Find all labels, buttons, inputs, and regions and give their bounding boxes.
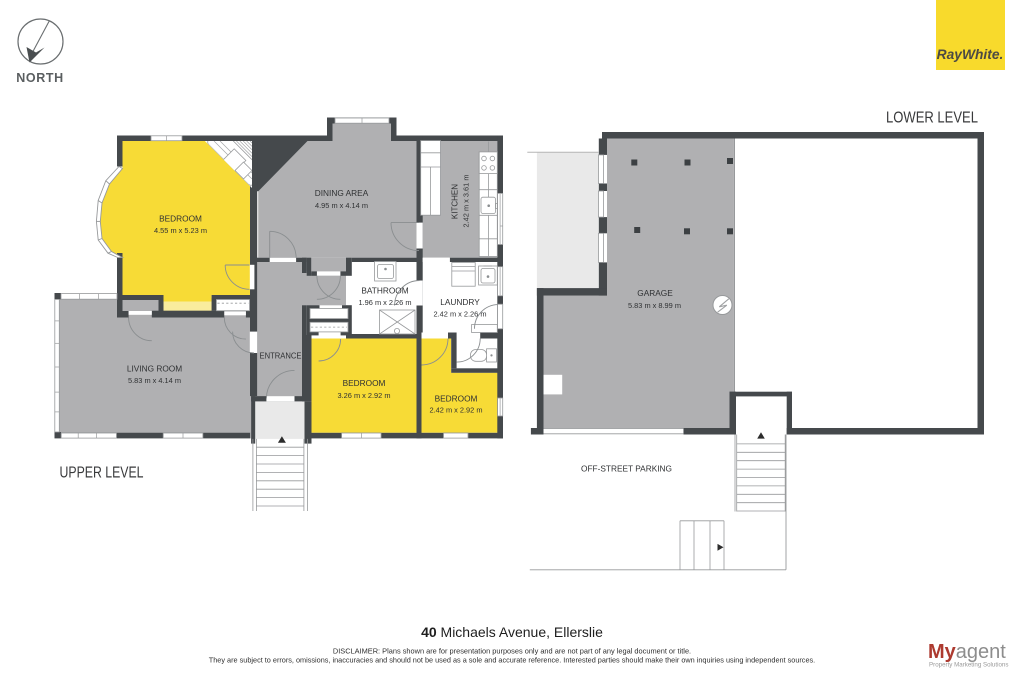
svg-text:40 Michaels Avenue, Ellerslie: 40 Michaels Avenue, Ellerslie	[421, 624, 603, 640]
svg-text:BEDROOM: BEDROOM	[159, 214, 202, 224]
svg-text:Myagent: Myagent	[928, 641, 1006, 663]
svg-text:5.83 m x 8.99 m: 5.83 m x 8.99 m	[628, 301, 681, 310]
svg-text:GARAGE: GARAGE	[637, 288, 673, 298]
svg-text:They are subject to errors, om: They are subject to errors, omissions, i…	[209, 656, 815, 665]
svg-text:OFF-STREET PARKING: OFF-STREET PARKING	[581, 464, 672, 474]
svg-text:3.26 m x 2.92 m: 3.26 m x 2.92 m	[338, 391, 391, 400]
svg-text:BATHROOM: BATHROOM	[361, 286, 408, 296]
svg-text:2.42 m x 3.61 m: 2.42 m x 3.61 m	[462, 175, 471, 228]
svg-text:4.55 m x 5.23 m: 4.55 m x 5.23 m	[154, 226, 207, 235]
svg-text:ENTRANCE: ENTRANCE	[260, 352, 302, 361]
svg-text:Property Marketing Solutions: Property Marketing Solutions	[929, 662, 1008, 669]
svg-text:LIVING ROOM: LIVING ROOM	[127, 364, 182, 374]
svg-text:2.42 m x 2.26 m: 2.42 m x 2.26 m	[434, 310, 487, 319]
svg-text:NORTH: NORTH	[16, 71, 63, 85]
svg-text:KITCHEN: KITCHEN	[451, 184, 460, 219]
svg-text:LOWER LEVEL: LOWER LEVEL	[886, 110, 978, 127]
svg-text:DISCLAIMER: Plans shown are fo: DISCLAIMER: Plans shown are for presenta…	[333, 647, 691, 656]
svg-text:5.83 m x 4.14 m: 5.83 m x 4.14 m	[128, 376, 181, 385]
svg-text:BEDROOM: BEDROOM	[343, 378, 386, 388]
svg-text:UPPER LEVEL: UPPER LEVEL	[60, 465, 144, 482]
svg-text:DINING AREA: DINING AREA	[315, 188, 369, 198]
svg-text:2.42 m x 2.92 m: 2.42 m x 2.92 m	[430, 406, 483, 415]
svg-text:4.95 m x 4.14 m: 4.95 m x 4.14 m	[315, 201, 368, 210]
svg-text:RayWhite.: RayWhite.	[937, 47, 1004, 62]
svg-text:1.96 m x 2.26 m: 1.96 m x 2.26 m	[359, 298, 412, 307]
svg-text:BEDROOM: BEDROOM	[435, 394, 478, 404]
svg-text:LAUNDRY: LAUNDRY	[440, 297, 480, 307]
